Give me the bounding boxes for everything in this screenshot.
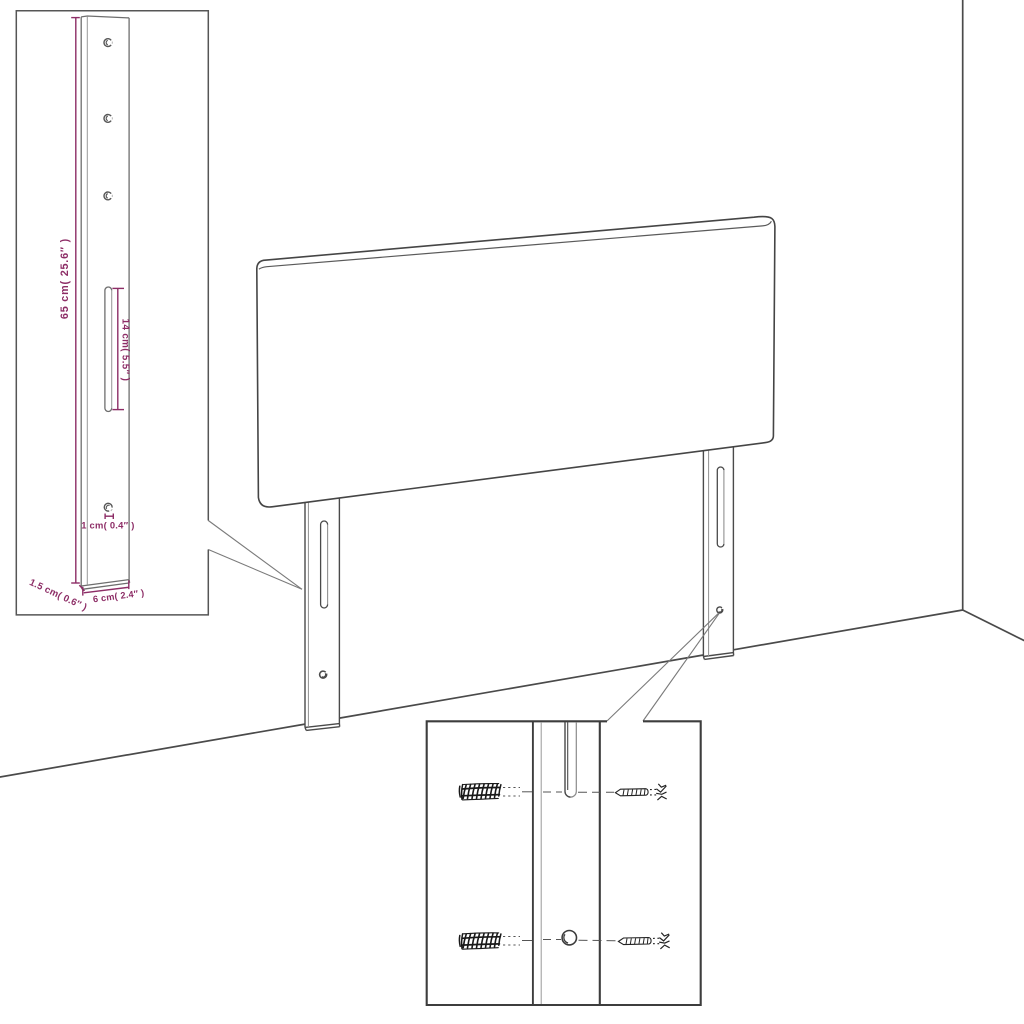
svg-text:1 cm( 0.4″ ): 1 cm( 0.4″ ) (81, 520, 134, 531)
svg-text:14 cm( 5.5″ ): 14 cm( 5.5″ ) (120, 319, 131, 382)
svg-text:65 cm( 25.6″ ): 65 cm( 25.6″ ) (59, 238, 71, 319)
